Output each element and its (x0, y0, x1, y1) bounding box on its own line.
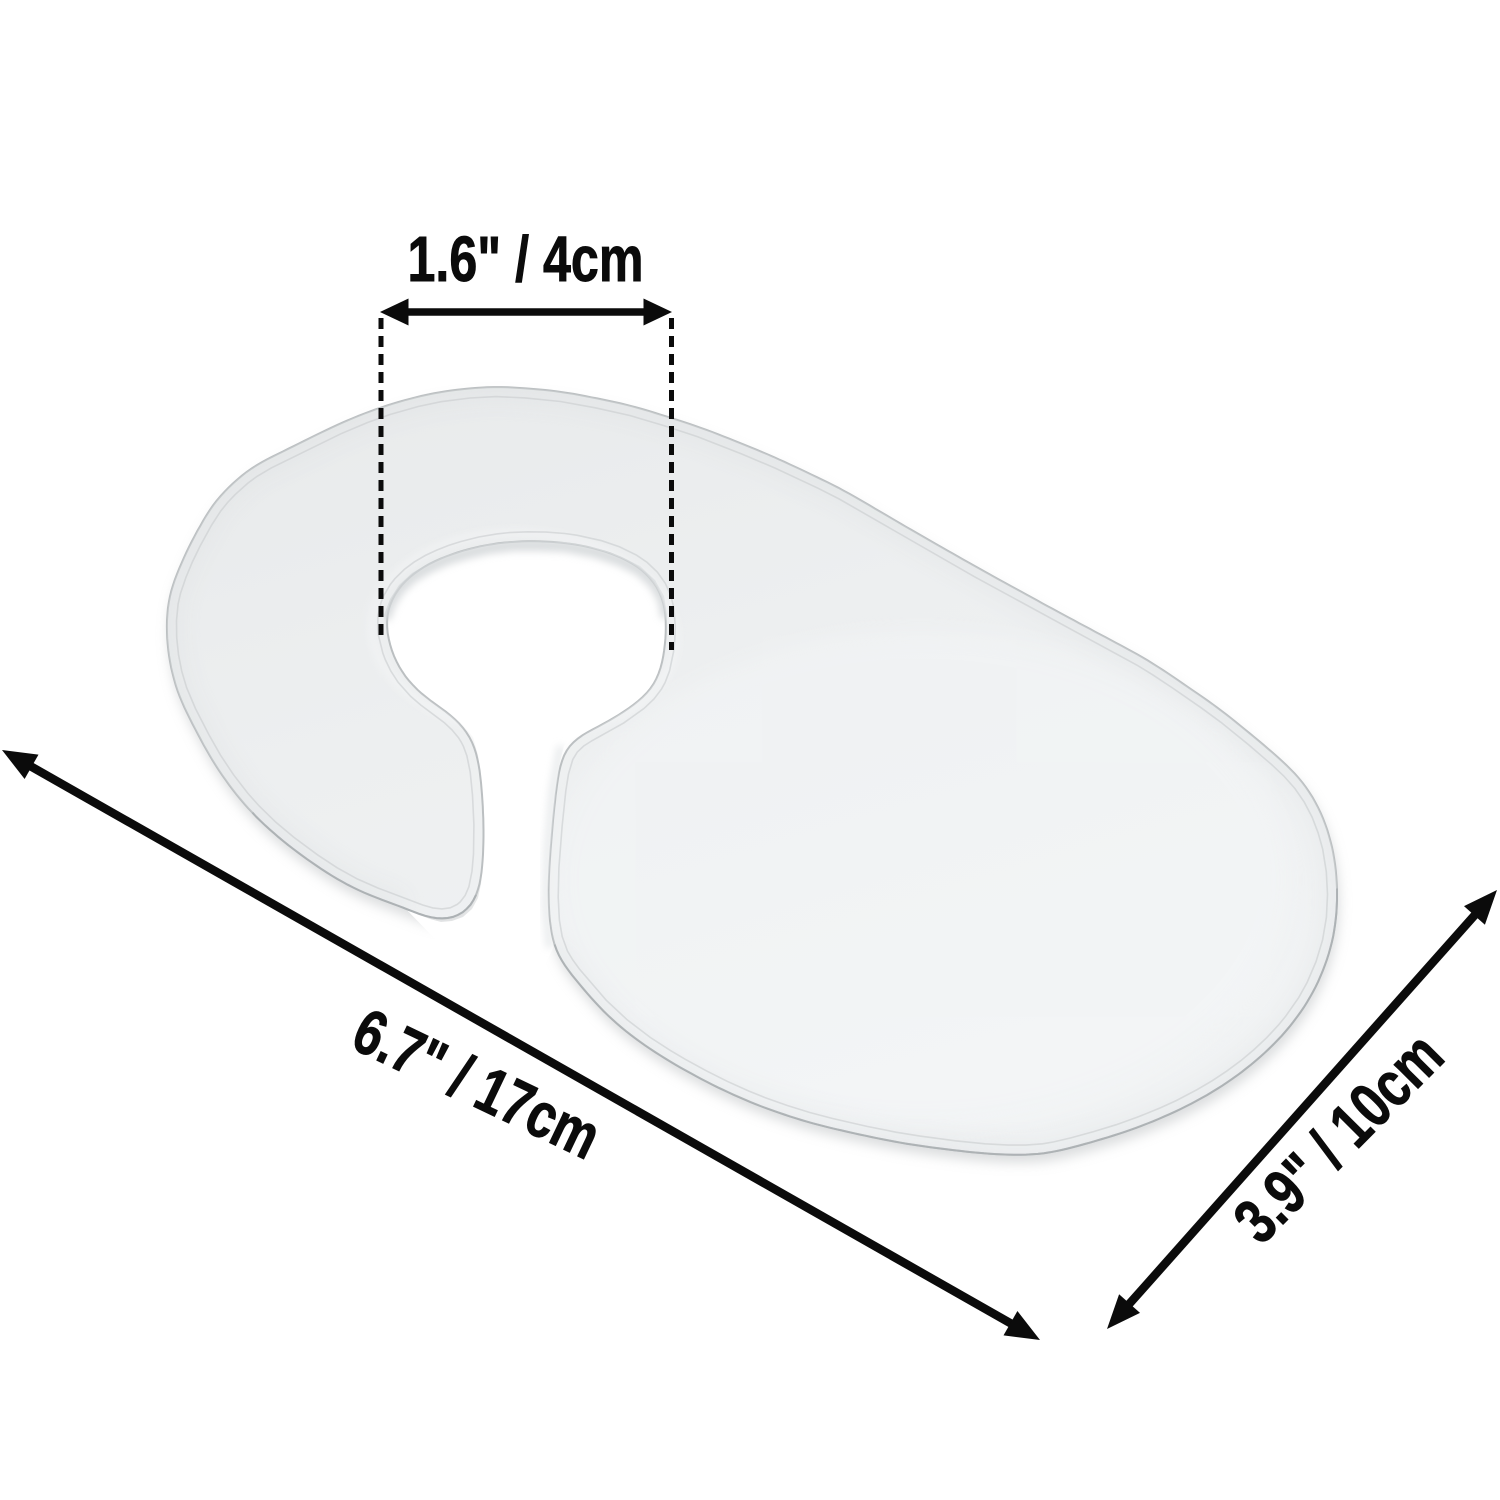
svg-text:1.6" / 4cm: 1.6" / 4cm (407, 224, 643, 295)
